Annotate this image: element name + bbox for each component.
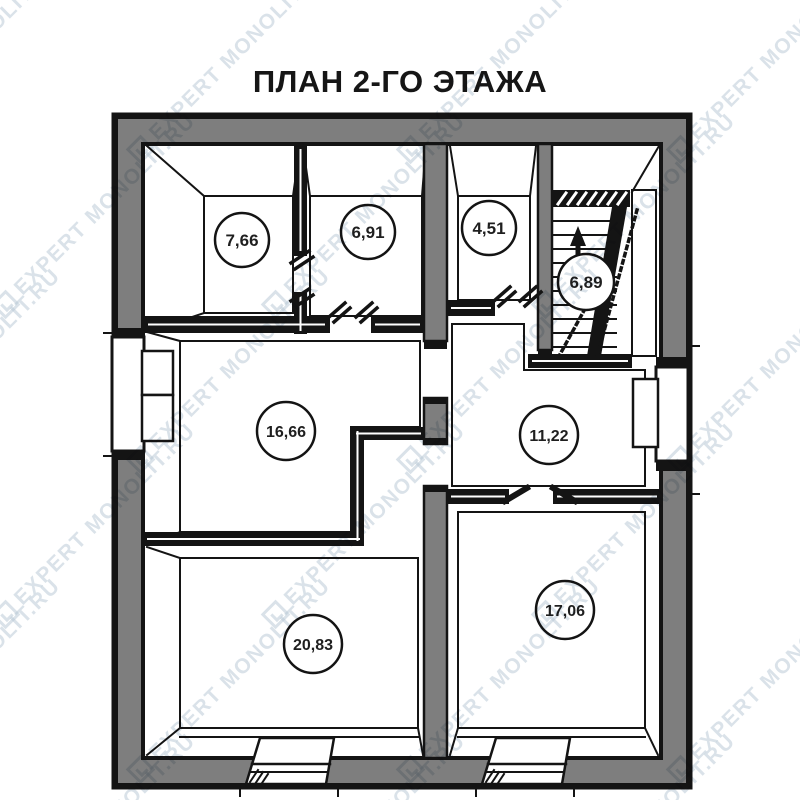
svg-text:11,22: 11,22 <box>529 428 568 445</box>
staircase <box>552 146 659 358</box>
svg-text:6,89: 6,89 <box>569 273 602 292</box>
room-area-label-room-451: 4,51 <box>462 201 516 255</box>
floor-plan: 7,666,914,516,8916,6611,2220,8317,06 <box>0 0 800 800</box>
room-area-label-room-1706: 17,06 <box>536 581 594 639</box>
room-area-label-room-691: 6,91 <box>341 205 395 259</box>
floor-plan-page: ПЛАН 2-ГО ЭТАЖА <box>0 0 800 800</box>
svg-text:16,66: 16,66 <box>266 424 306 441</box>
interior-wall-cores <box>148 150 656 540</box>
room-area-label-room-1122: 11,22 <box>520 406 578 464</box>
svg-text:6,91: 6,91 <box>351 223 384 242</box>
svg-text:4,51: 4,51 <box>472 219 505 238</box>
room-area-label-room-689: 6,89 <box>558 254 614 310</box>
room-area-label-room-1666: 16,66 <box>257 402 315 460</box>
svg-text:7,66: 7,66 <box>225 231 258 250</box>
room-area-label-room-766: 7,66 <box>215 213 269 267</box>
svg-text:17,06: 17,06 <box>545 603 585 620</box>
window-left <box>104 328 173 460</box>
outer-walls <box>114 115 690 787</box>
svg-text:20,83: 20,83 <box>293 637 333 654</box>
page-title: ПЛАН 2-ГО ЭТАЖА <box>0 64 800 100</box>
room-area-label-room-2083: 20,83 <box>284 615 342 673</box>
